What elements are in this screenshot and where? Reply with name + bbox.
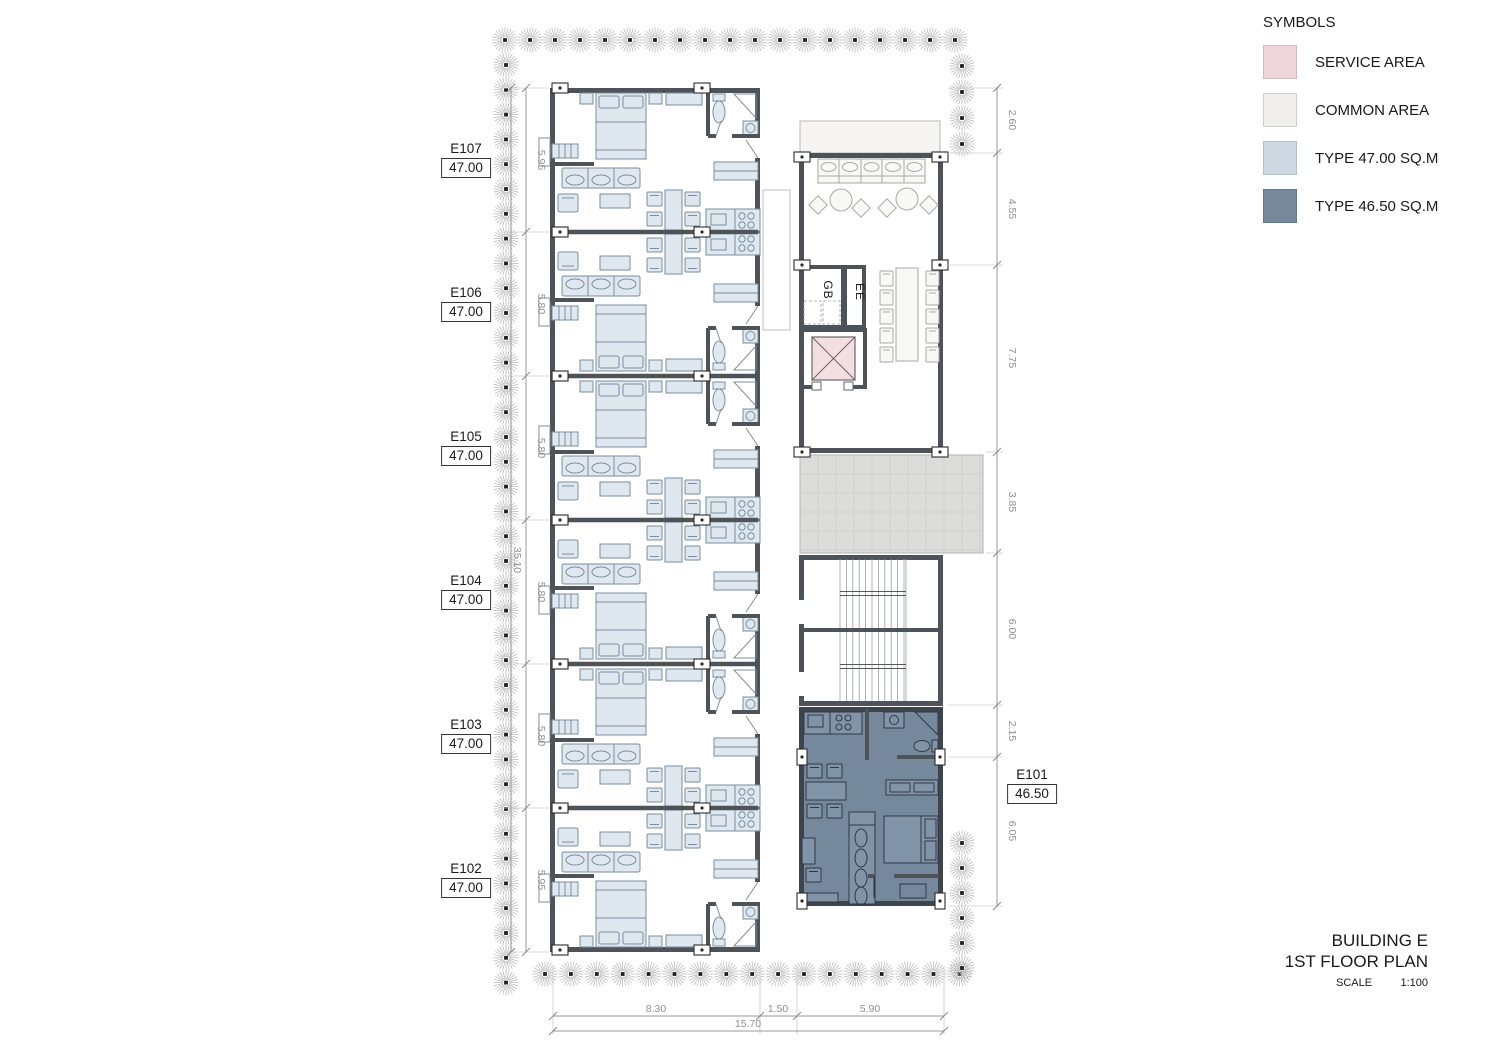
legend-item-type-47: TYPE 47.00 SQ.M bbox=[1263, 141, 1438, 175]
unit-area: 47.00 bbox=[441, 878, 491, 898]
dim-left-total: 35.10 bbox=[511, 547, 523, 573]
unit-label-e103: E10347.00 bbox=[441, 717, 491, 754]
paved-terrace bbox=[800, 455, 983, 553]
unit-label-e106: E10647.00 bbox=[441, 285, 491, 322]
title-block: BUILDING E 1ST FLOOR PLAN SCALE 1:100 bbox=[1285, 930, 1428, 989]
gb-room-label: GB bbox=[821, 280, 835, 299]
unit-e101 bbox=[802, 709, 941, 905]
unit-id: E107 bbox=[441, 141, 491, 156]
project-title: BUILDING E bbox=[1285, 930, 1428, 951]
dim-right-4: 6.00 bbox=[1006, 619, 1018, 640]
dim-left-5: 5.95 bbox=[535, 870, 547, 891]
unit-label-e101: E10146.50 bbox=[1007, 767, 1057, 804]
unit-id: E104 bbox=[441, 573, 491, 588]
legend-item-service-area: SERVICE AREA bbox=[1263, 45, 1438, 79]
dim-right-0: 2.60 bbox=[1006, 110, 1018, 131]
lounge bbox=[809, 188, 938, 217]
dim-bottom-2: 5.90 bbox=[860, 1003, 881, 1015]
elevator bbox=[801, 330, 865, 390]
dim-bottom-1: 1.50 bbox=[768, 1003, 789, 1015]
unit-label-e107: E10747.00 bbox=[441, 141, 491, 178]
dining-table bbox=[806, 782, 846, 800]
dim-right-5: 2.15 bbox=[1006, 721, 1018, 742]
dim-left-1: 5.80 bbox=[535, 294, 547, 315]
dim-bottom-0: 8.30 bbox=[646, 1003, 667, 1015]
legend-item-common-area: COMMON AREA bbox=[1263, 93, 1438, 127]
unit-id: E106 bbox=[441, 285, 491, 300]
unit-id: E105 bbox=[441, 429, 491, 444]
dim-right-3: 3.85 bbox=[1006, 492, 1018, 513]
type-47-swatch bbox=[1263, 141, 1297, 175]
toilet bbox=[914, 741, 930, 752]
legend-item-type-46: TYPE 46.50 SQ.M bbox=[1263, 189, 1438, 223]
reception-counter bbox=[818, 159, 925, 183]
unit-id: E102 bbox=[441, 861, 491, 876]
corridor bbox=[763, 190, 790, 330]
scale-label: SCALE bbox=[1336, 977, 1372, 989]
entry-terrace bbox=[800, 121, 940, 153]
unit-area: 47.00 bbox=[441, 158, 491, 178]
scale-value: 1:100 bbox=[1400, 977, 1428, 989]
sofa bbox=[849, 812, 875, 904]
dim-left-3: 5.80 bbox=[535, 582, 547, 603]
stairwell bbox=[797, 558, 941, 704]
common-area-swatch bbox=[1263, 93, 1297, 127]
common-dining-table bbox=[880, 268, 939, 362]
unit-id: E101 bbox=[1007, 767, 1057, 782]
dim-left-0: 5.95 bbox=[535, 150, 547, 171]
service-area-swatch bbox=[1263, 45, 1297, 79]
drawing-title: 1ST FLOOR PLAN bbox=[1285, 951, 1428, 972]
unit-area: 47.00 bbox=[441, 734, 491, 754]
unit-label-e104: E10447.00 bbox=[441, 573, 491, 610]
unit-area: 47.00 bbox=[441, 590, 491, 610]
unit-area: 47.00 bbox=[441, 446, 491, 466]
unit-label-e105: E10547.00 bbox=[441, 429, 491, 466]
dim-bottom-total: 15.70 bbox=[735, 1018, 761, 1030]
dim-right-6: 6.05 bbox=[1006, 821, 1018, 842]
floor-plan-sheet: GB EE bbox=[0, 0, 1500, 1061]
dim-right-1: 4.55 bbox=[1006, 199, 1018, 220]
unit-area: 47.00 bbox=[441, 302, 491, 322]
type-46-swatch bbox=[1263, 189, 1297, 223]
unit-id: E103 bbox=[441, 717, 491, 732]
dim-left-4: 5.80 bbox=[535, 726, 547, 747]
unit-label-e102: E10247.00 bbox=[441, 861, 491, 898]
ee-room-label: EE bbox=[853, 283, 867, 301]
legend: SYMBOLS SERVICE AREA COMMON AREA TYPE 47… bbox=[1263, 14, 1438, 237]
unit-area: 46.50 bbox=[1007, 784, 1057, 804]
dim-left-2: 5.80 bbox=[535, 438, 547, 459]
legend-title: SYMBOLS bbox=[1263, 14, 1438, 31]
dim-right-2: 7.75 bbox=[1006, 348, 1018, 369]
